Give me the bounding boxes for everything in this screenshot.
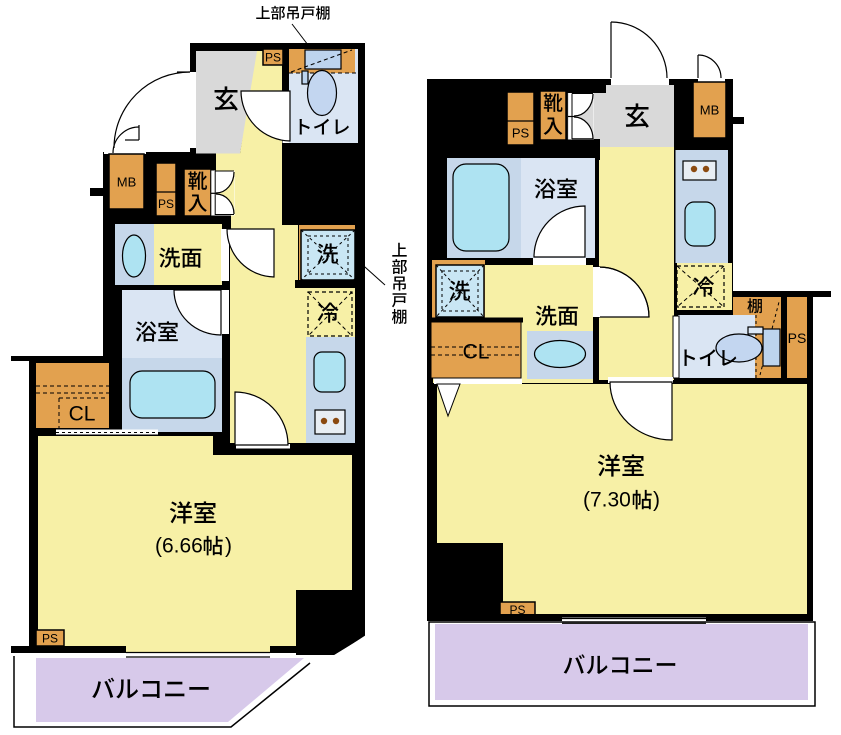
svg-text:PS: PS [265, 51, 281, 65]
svg-text:MB: MB [117, 175, 137, 190]
svg-text:CL: CL [463, 341, 490, 364]
svg-text:PS: PS [42, 632, 58, 646]
svg-text:(7.30: (7.30 [583, 489, 631, 512]
svg-text:PS: PS [788, 330, 807, 346]
svg-text:PS: PS [158, 197, 174, 211]
svg-text:(6.66: (6.66 [155, 535, 203, 558]
svg-text:MB: MB [700, 103, 720, 118]
svg-text:): ) [653, 489, 660, 512]
svg-text:CL: CL [69, 403, 96, 426]
svg-text:): ) [225, 535, 232, 558]
svg-text:PS: PS [512, 126, 530, 141]
